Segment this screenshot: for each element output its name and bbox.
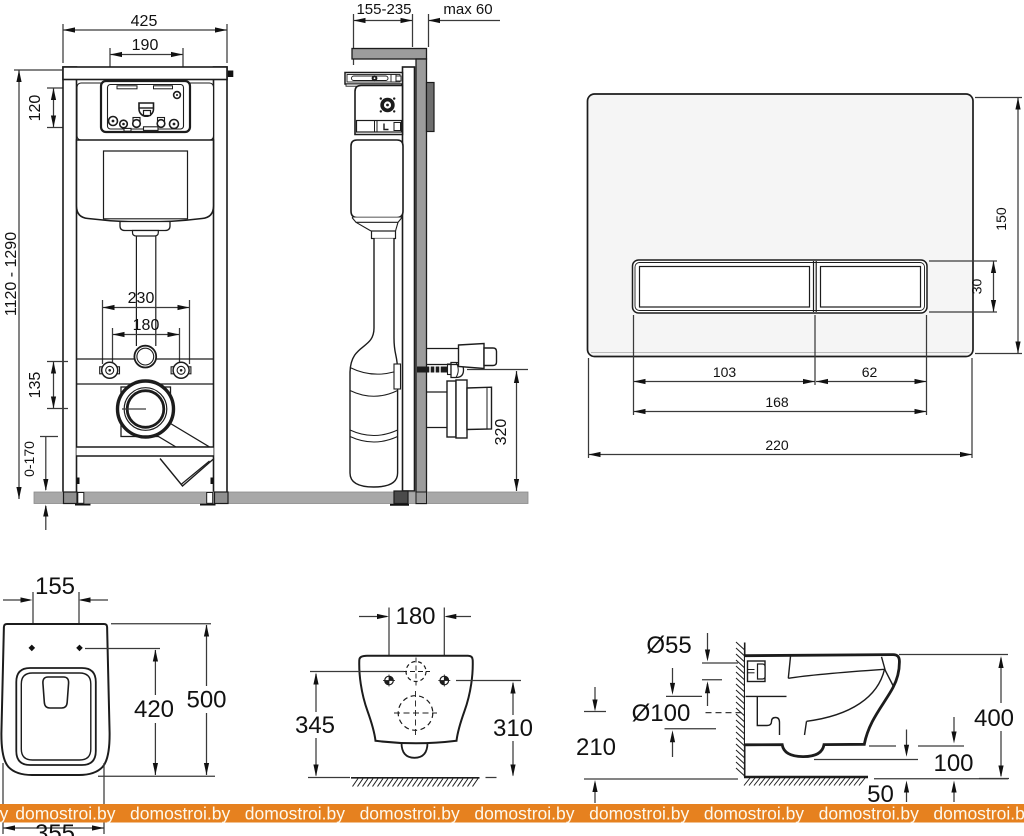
svg-text:155: 155	[35, 573, 75, 600]
svg-text:345: 345	[295, 712, 335, 739]
svg-text:155-235: 155-235	[356, 1, 411, 18]
svg-text:180: 180	[395, 603, 435, 630]
svg-text:0-170: 0-170	[21, 441, 37, 477]
svg-text:135: 135	[27, 372, 44, 399]
svg-text:150: 150	[993, 207, 1009, 231]
svg-text:30: 30	[969, 279, 985, 295]
svg-text:400: 400	[974, 705, 1014, 732]
svg-text:220: 220	[765, 437, 789, 453]
svg-text:62: 62	[862, 364, 878, 380]
svg-text:168: 168	[765, 394, 789, 410]
svg-text:310: 310	[493, 715, 533, 742]
svg-text:Ø100: Ø100	[632, 700, 691, 727]
svg-text:420: 420	[134, 696, 174, 723]
svg-text:120: 120	[27, 95, 44, 122]
svg-text:100: 100	[933, 750, 973, 777]
svg-text:210: 210	[576, 734, 616, 761]
svg-text:355: 355	[35, 820, 75, 836]
svg-text:190: 190	[132, 37, 159, 54]
svg-text:max 60: max 60	[443, 1, 492, 18]
svg-text:500: 500	[186, 687, 226, 714]
svg-text:Ø55: Ø55	[646, 632, 691, 659]
svg-text:320: 320	[493, 419, 510, 446]
svg-text:domostroi.by domostroi.by: domostroi.by domostroi.by domostroi.by d…	[0, 804, 1024, 824]
svg-text:425: 425	[131, 13, 158, 30]
svg-text:1120 - 1290: 1120 - 1290	[3, 232, 20, 316]
svg-text:230: 230	[128, 290, 155, 307]
svg-text:180: 180	[133, 317, 160, 334]
svg-text:103: 103	[713, 364, 737, 380]
